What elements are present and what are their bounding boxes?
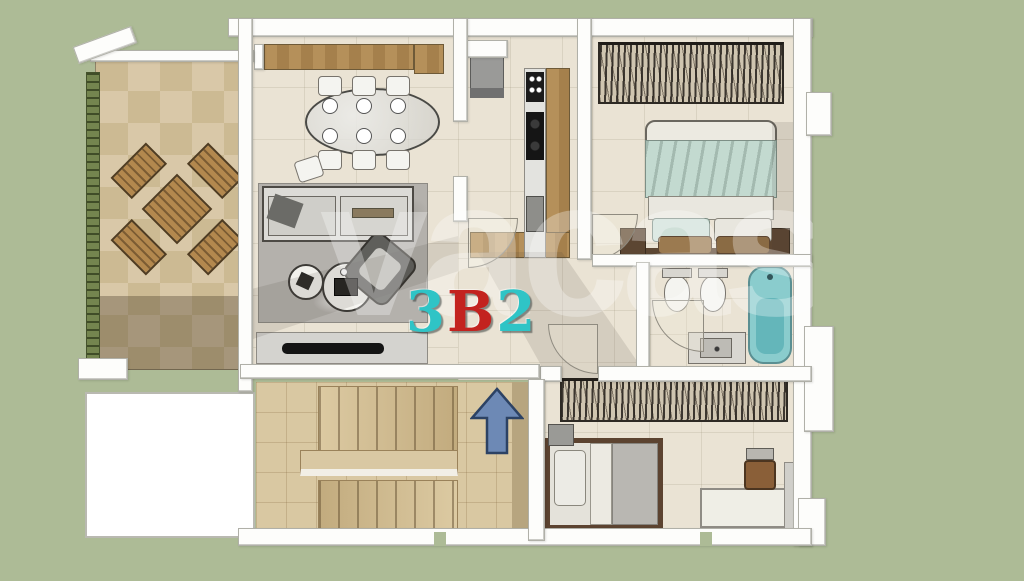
wall-kitchen-bedroom xyxy=(577,18,592,260)
entrance-arrow-icon xyxy=(470,386,524,456)
outer-wall-top xyxy=(228,18,813,37)
single-bed-sheet-fold xyxy=(590,443,612,525)
kitchen-sink xyxy=(526,196,544,232)
bed-pillow-brown xyxy=(658,236,712,254)
bathtub-faucet xyxy=(767,274,773,280)
master-wardrobe-hanging-clothes xyxy=(598,42,784,104)
bidet-fitting xyxy=(698,268,728,278)
desk xyxy=(700,488,792,528)
double-bed-folded-sheet xyxy=(648,196,774,220)
wall-bedroom-bathroom xyxy=(592,254,812,267)
unit-label: 3B2 xyxy=(406,284,537,340)
desk-chair xyxy=(744,460,776,490)
dining-chair xyxy=(386,150,410,170)
terrace-bottom-corner xyxy=(78,358,128,380)
nightstand-gray xyxy=(548,424,574,446)
dining-chair xyxy=(318,76,342,96)
desk-chair-back xyxy=(746,448,774,460)
table-setting xyxy=(322,128,338,144)
oven-control-panel xyxy=(526,72,544,102)
cooktop xyxy=(526,112,544,160)
stair-landing xyxy=(300,450,458,476)
terrace-hedge xyxy=(86,72,100,372)
outer-wall-bottom xyxy=(238,528,812,546)
bed-pillow-brown xyxy=(716,236,770,254)
unit-label-char: B xyxy=(447,279,496,345)
sideboard xyxy=(264,44,414,70)
unit-label-char: 3 xyxy=(406,279,447,345)
empty-room xyxy=(85,392,255,538)
table-setting xyxy=(356,98,372,114)
wall-gap xyxy=(700,532,712,546)
wall-bathroom-hall xyxy=(636,262,650,380)
dining-chair xyxy=(386,76,410,96)
entrance-arrow-shape xyxy=(472,389,522,453)
stair-flight-upper xyxy=(318,386,458,454)
second-wardrobe-hanging-clothes xyxy=(560,378,788,422)
kitchen-cabinet-run xyxy=(546,68,570,258)
sideboard-end-cap xyxy=(254,44,264,70)
wall-living-stairhall xyxy=(240,364,540,379)
sofa-tray xyxy=(352,208,394,218)
refrigerator-front xyxy=(470,88,504,98)
coffee-table-cup xyxy=(340,268,348,276)
dining-chair xyxy=(352,150,376,170)
toilet-tank xyxy=(662,268,692,278)
table-setting xyxy=(356,128,372,144)
tv-screen xyxy=(282,343,384,354)
dining-chair xyxy=(352,76,376,96)
floor-plan-render: vacasa 3B2 xyxy=(0,0,1024,581)
wall-bay-upper xyxy=(806,92,832,136)
bathtub-interior xyxy=(756,298,784,354)
vanity-sink xyxy=(700,338,732,358)
wall-living-kitchen xyxy=(453,18,468,122)
table-setting xyxy=(322,98,338,114)
wall-hall-bedroom2 xyxy=(598,366,812,382)
single-bed-pillow xyxy=(554,450,586,506)
single-bed-duvet xyxy=(612,443,658,525)
kitchen-upper-cabinet xyxy=(466,40,508,58)
wall-stair-right xyxy=(528,379,545,541)
outdoor-table xyxy=(142,174,213,245)
outer-wall-left xyxy=(238,18,253,392)
sideboard-right-section xyxy=(414,44,444,74)
wall-living-kitchen-stub xyxy=(453,176,468,222)
coffee-table-tray xyxy=(334,278,358,296)
terrace-top-edge xyxy=(90,50,254,62)
unit-label-char: 2 xyxy=(496,279,537,345)
double-bed-duvet xyxy=(645,140,777,198)
table-setting xyxy=(390,98,406,114)
wall-gap xyxy=(434,532,446,546)
table-setting xyxy=(390,128,406,144)
